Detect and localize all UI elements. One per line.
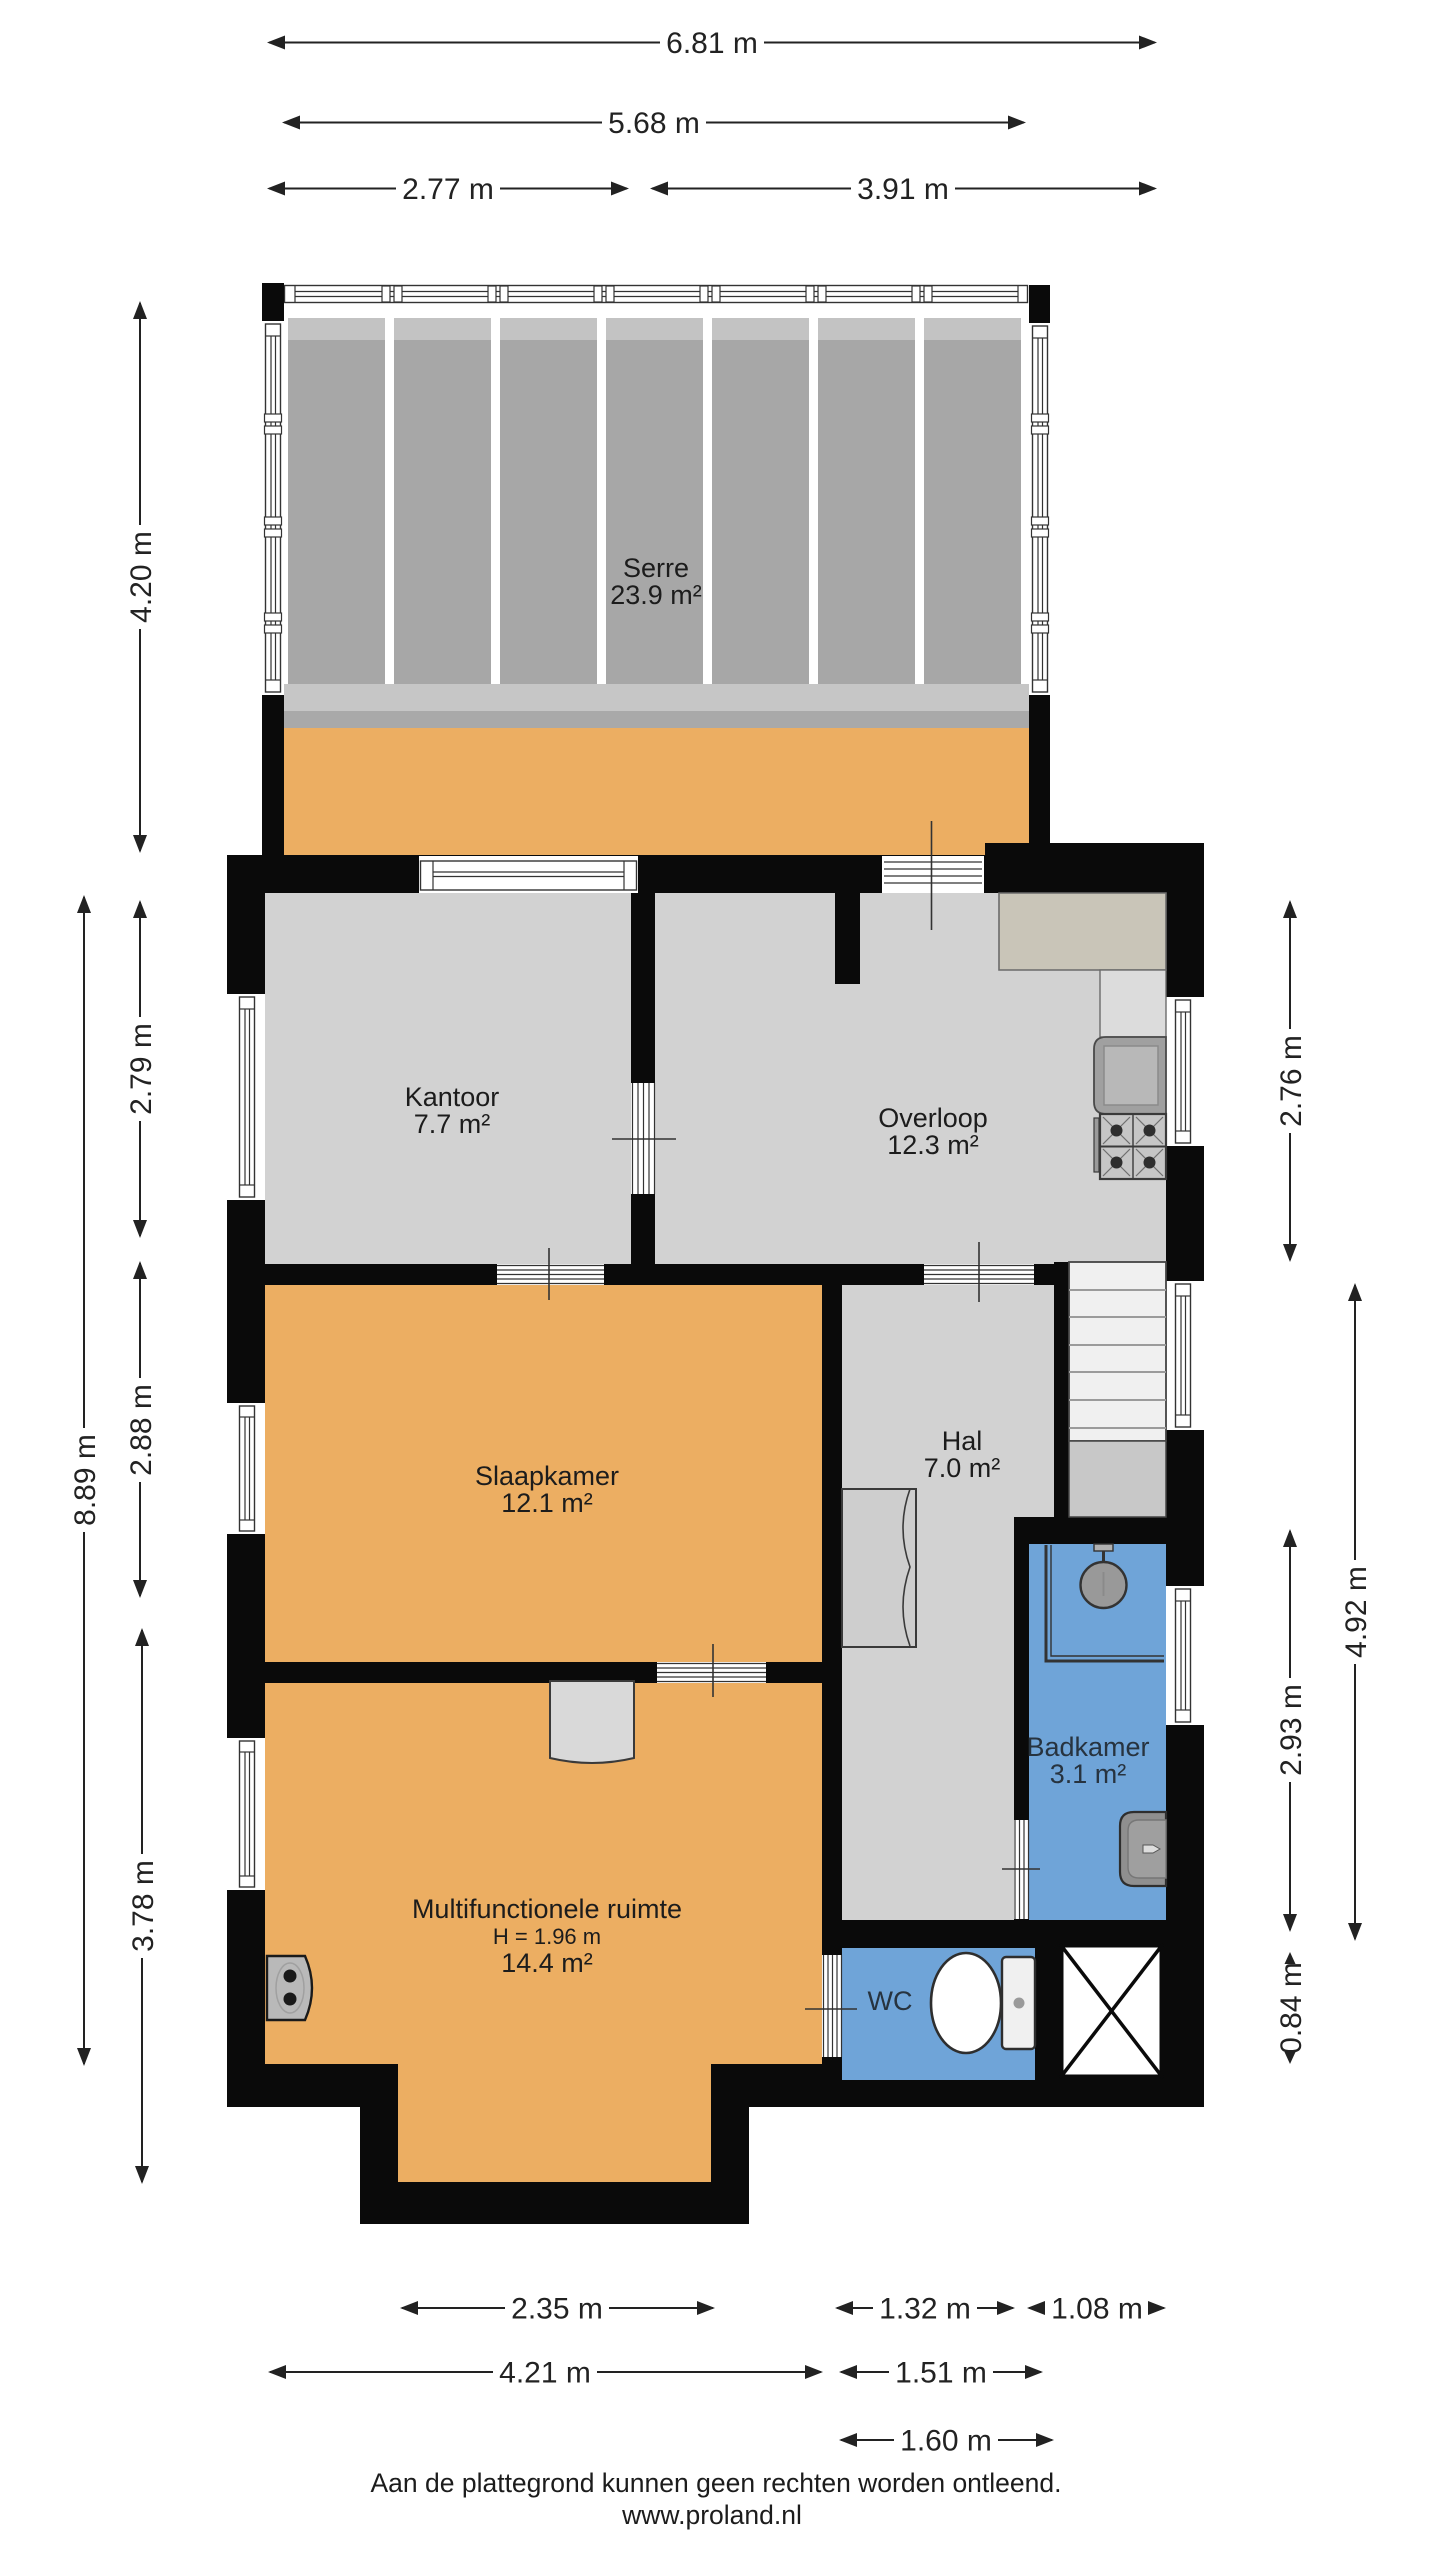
svg-text:4.21 m: 4.21 m bbox=[499, 2357, 591, 2390]
svg-text:Serre: Serre bbox=[623, 553, 689, 583]
svg-text:23.9 m²: 23.9 m² bbox=[610, 580, 702, 610]
svg-text:1.32 m: 1.32 m bbox=[879, 2293, 971, 2326]
svg-text:Overloop: Overloop bbox=[878, 1103, 988, 1133]
svg-text:WC: WC bbox=[868, 1986, 913, 2016]
svg-text:6.81 m: 6.81 m bbox=[666, 27, 758, 60]
svg-text:1.60 m: 1.60 m bbox=[900, 2425, 992, 2458]
svg-text:1.51 m: 1.51 m bbox=[895, 2357, 987, 2390]
svg-text:0.84 m: 0.84 m bbox=[1275, 1962, 1308, 2054]
svg-text:3.1 m²: 3.1 m² bbox=[1050, 1759, 1127, 1789]
svg-text:12.3 m²: 12.3 m² bbox=[887, 1130, 979, 1160]
svg-text:3.78 m: 3.78 m bbox=[127, 1860, 160, 1952]
svg-text:Hal: Hal bbox=[942, 1426, 983, 1456]
svg-text:H = 1.96 m: H = 1.96 m bbox=[493, 1924, 601, 1949]
svg-text:2.88 m: 2.88 m bbox=[125, 1384, 158, 1476]
svg-text:8.89 m: 8.89 m bbox=[69, 1434, 102, 1526]
svg-text:7.0 m²: 7.0 m² bbox=[924, 1453, 1001, 1483]
svg-text:Badkamer: Badkamer bbox=[1026, 1732, 1149, 1762]
svg-text:4.92 m: 4.92 m bbox=[1340, 1566, 1373, 1658]
svg-text:Slaapkamer: Slaapkamer bbox=[475, 1461, 619, 1491]
svg-text:4.20 m: 4.20 m bbox=[125, 531, 158, 623]
svg-text:2.77 m: 2.77 m bbox=[402, 173, 494, 206]
svg-text:3.91 m: 3.91 m bbox=[857, 173, 949, 206]
svg-text:Aan de plattegrond kunnen geen: Aan de plattegrond kunnen geen rechten w… bbox=[370, 2468, 1061, 2498]
svg-text:1.08 m: 1.08 m bbox=[1051, 2293, 1143, 2326]
svg-text:2.35 m: 2.35 m bbox=[511, 2293, 603, 2326]
svg-text:Multifunctionele ruimte: Multifunctionele ruimte bbox=[412, 1894, 682, 1924]
svg-text:14.4 m²: 14.4 m² bbox=[501, 1948, 593, 1978]
svg-text:2.93 m: 2.93 m bbox=[1275, 1684, 1308, 1776]
svg-text:2.79 m: 2.79 m bbox=[125, 1023, 158, 1115]
svg-text:5.68 m: 5.68 m bbox=[608, 107, 700, 140]
svg-text:Kantoor: Kantoor bbox=[405, 1082, 500, 1112]
svg-text:www.proland.nl: www.proland.nl bbox=[621, 2500, 802, 2530]
svg-text:7.7 m²: 7.7 m² bbox=[414, 1109, 491, 1139]
svg-text:2.76 m: 2.76 m bbox=[1275, 1035, 1308, 1127]
svg-text:12.1 m²: 12.1 m² bbox=[501, 1488, 593, 1518]
